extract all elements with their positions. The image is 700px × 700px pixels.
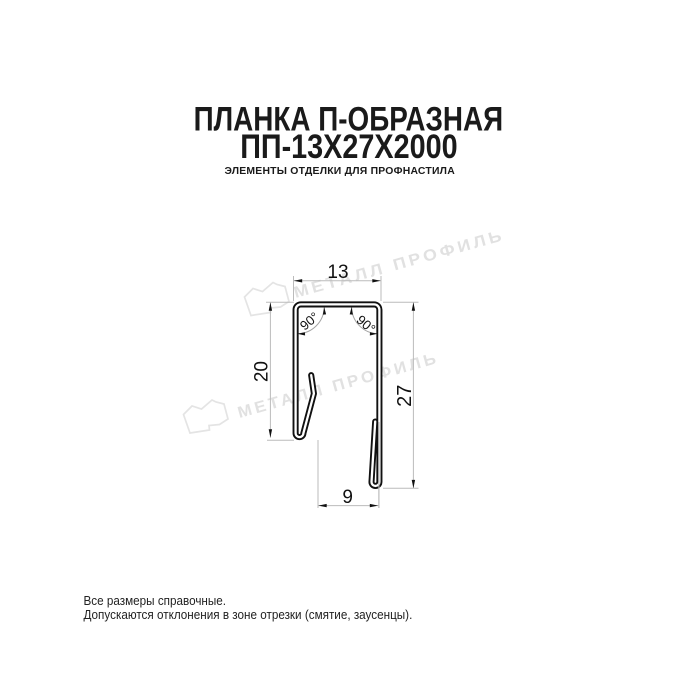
svg-text:ПП-13Х27Х2000: ПП-13Х27Х2000 xyxy=(240,127,457,166)
svg-text:9: 9 xyxy=(342,487,353,508)
svg-text:ЭЛЕМЕНТЫ ОТДЕЛКИ ДЛЯ ПРОФНАСТИ: ЭЛЕМЕНТЫ ОТДЕЛКИ ДЛЯ ПРОФНАСТИЛА xyxy=(225,166,456,177)
svg-text:Все размеры справочные.: Все размеры справочные. xyxy=(84,593,227,608)
svg-text:20: 20 xyxy=(251,361,272,382)
svg-text:13: 13 xyxy=(327,262,348,283)
svg-text:27: 27 xyxy=(394,385,416,407)
svg-text:Допускаются отклонения в зоне: Допускаются отклонения в зоне отрезки (с… xyxy=(84,607,413,622)
